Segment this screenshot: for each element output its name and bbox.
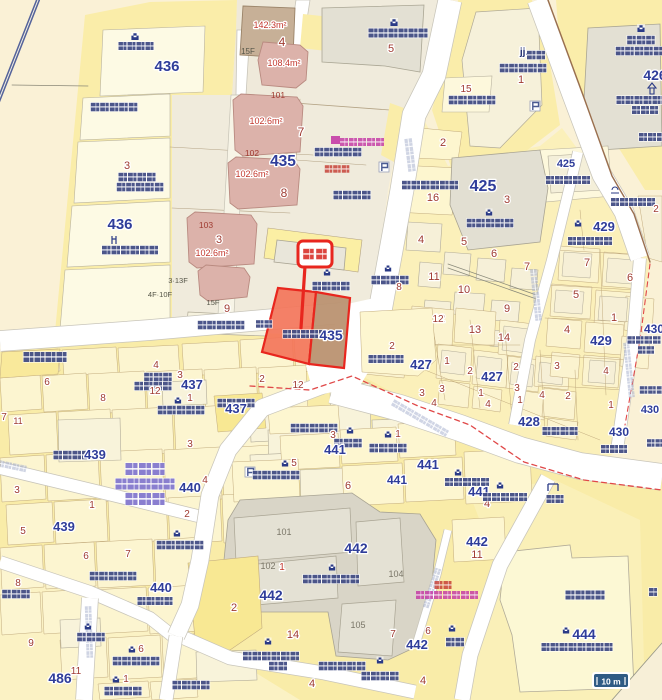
svg-text:429: 429 — [590, 333, 612, 348]
svg-text:3: 3 — [439, 384, 445, 395]
svg-text:435: 435 — [319, 327, 343, 343]
svg-text:4: 4 — [603, 366, 609, 377]
svg-text:11: 11 — [428, 271, 439, 283]
svg-text:442: 442 — [406, 637, 428, 652]
svg-text:4: 4 — [564, 324, 570, 336]
svg-text:441: 441 — [324, 442, 346, 457]
svg-text:102.6m²: 102.6m² — [195, 248, 228, 258]
svg-text:9: 9 — [28, 638, 34, 649]
svg-text:2: 2 — [513, 362, 519, 373]
svg-text:441: 441 — [387, 473, 407, 487]
svg-text:2: 2 — [259, 374, 265, 385]
svg-text:444: 444 — [572, 626, 596, 642]
svg-text:439: 439 — [84, 447, 106, 462]
svg-text:104: 104 — [388, 569, 403, 579]
svg-text:6: 6 — [138, 644, 144, 655]
svg-text:437: 437 — [181, 377, 203, 392]
svg-text:441: 441 — [417, 457, 439, 472]
svg-text:435: 435 — [270, 153, 296, 170]
svg-text:1: 1 — [518, 74, 524, 86]
svg-text:3: 3 — [504, 194, 510, 206]
svg-text:4: 4 — [485, 399, 491, 410]
svg-text:10 m: 10 m — [601, 677, 621, 687]
svg-text:13: 13 — [469, 324, 481, 336]
svg-text:4: 4 — [279, 35, 286, 49]
svg-text:430: 430 — [641, 404, 659, 416]
svg-text:439: 439 — [53, 519, 75, 534]
svg-text:6: 6 — [491, 248, 497, 260]
svg-text:3: 3 — [514, 383, 520, 394]
svg-text:3: 3 — [216, 234, 222, 246]
svg-text:3·13F: 3·13F — [168, 276, 188, 285]
svg-text:3: 3 — [419, 388, 425, 399]
svg-text:436: 436 — [107, 216, 132, 233]
svg-text:15F: 15F — [241, 47, 255, 56]
svg-text:101: 101 — [271, 90, 285, 100]
svg-text:142.3m²: 142.3m² — [253, 20, 286, 30]
svg-text:7: 7 — [584, 257, 590, 269]
svg-text:12: 12 — [432, 314, 444, 325]
svg-text:101: 101 — [276, 527, 291, 537]
svg-text:1: 1 — [187, 393, 193, 404]
svg-text:426: 426 — [643, 67, 662, 83]
svg-text:1: 1 — [517, 395, 523, 406]
svg-text:15F: 15F — [207, 298, 220, 307]
svg-text:5: 5 — [291, 458, 297, 469]
svg-text:16: 16 — [427, 192, 439, 204]
svg-text:102: 102 — [260, 561, 275, 571]
svg-text:1: 1 — [279, 562, 285, 573]
svg-text:5: 5 — [573, 289, 579, 301]
svg-text:10: 10 — [458, 284, 470, 296]
svg-text:1: 1 — [395, 429, 401, 440]
svg-text:102.6m²: 102.6m² — [235, 169, 268, 179]
svg-text:2: 2 — [565, 391, 571, 402]
svg-text:8: 8 — [396, 282, 402, 293]
svg-text:6: 6 — [345, 480, 351, 492]
svg-text:2: 2 — [653, 204, 659, 215]
svg-text:2: 2 — [231, 602, 237, 614]
svg-text:429: 429 — [593, 219, 615, 234]
svg-text:8: 8 — [15, 578, 21, 589]
svg-text:103: 103 — [199, 220, 213, 230]
svg-text:108.4m²: 108.4m² — [267, 58, 300, 68]
svg-text:6: 6 — [83, 551, 89, 562]
svg-text:3: 3 — [14, 485, 20, 496]
svg-text:428: 428 — [518, 414, 540, 429]
svg-text:486: 486 — [48, 670, 72, 686]
svg-text:437: 437 — [225, 401, 247, 416]
svg-text:8: 8 — [100, 393, 106, 404]
svg-text:4: 4 — [418, 234, 424, 246]
svg-text:11: 11 — [13, 416, 22, 426]
svg-text:3: 3 — [187, 439, 193, 450]
svg-text:11: 11 — [71, 666, 82, 677]
svg-text:2: 2 — [184, 509, 190, 520]
svg-text:430: 430 — [609, 425, 629, 439]
svg-text:2: 2 — [467, 366, 473, 377]
svg-text:6: 6 — [627, 272, 633, 284]
svg-text:1: 1 — [611, 312, 617, 324]
svg-text:440: 440 — [179, 480, 201, 495]
svg-text:15: 15 — [460, 84, 472, 95]
svg-text:102: 102 — [245, 148, 259, 158]
svg-text:7: 7 — [1, 412, 7, 423]
svg-text:3: 3 — [124, 160, 130, 172]
svg-text:14: 14 — [287, 629, 299, 641]
svg-text:9: 9 — [224, 303, 230, 315]
svg-text:427: 427 — [481, 369, 503, 384]
svg-text:1: 1 — [444, 356, 450, 367]
svg-text:4: 4 — [539, 390, 545, 401]
svg-text:4: 4 — [420, 675, 426, 687]
svg-text:7: 7 — [390, 629, 396, 640]
svg-text:427: 427 — [410, 357, 432, 372]
svg-text:12: 12 — [292, 380, 304, 391]
svg-text:5: 5 — [388, 43, 394, 55]
svg-text:5: 5 — [20, 526, 26, 537]
svg-text:1: 1 — [89, 500, 95, 511]
svg-text:2: 2 — [440, 137, 446, 149]
svg-text:1: 1 — [608, 400, 614, 411]
svg-text:7: 7 — [524, 261, 530, 273]
svg-text:2: 2 — [389, 341, 395, 352]
svg-text:3: 3 — [554, 361, 560, 372]
svg-text:4: 4 — [202, 475, 208, 486]
svg-text:425: 425 — [470, 178, 497, 195]
svg-text:436: 436 — [154, 58, 179, 75]
svg-text:4: 4 — [153, 360, 159, 371]
svg-text:6: 6 — [425, 626, 431, 637]
svg-text:440: 440 — [150, 580, 172, 595]
svg-text:442: 442 — [466, 534, 488, 549]
svg-text:4F·10F: 4F·10F — [148, 290, 173, 299]
svg-text:7: 7 — [298, 125, 305, 139]
svg-text:442: 442 — [259, 587, 283, 603]
svg-text:11: 11 — [471, 549, 482, 561]
svg-text:8: 8 — [281, 186, 288, 200]
svg-text:1: 1 — [478, 388, 484, 399]
svg-text:425: 425 — [557, 158, 575, 170]
svg-text:442: 442 — [344, 540, 368, 556]
svg-text:12: 12 — [149, 386, 161, 397]
svg-text:105: 105 — [350, 620, 365, 630]
svg-text:4: 4 — [431, 398, 437, 409]
svg-text:6: 6 — [44, 377, 50, 388]
svg-text:4: 4 — [309, 678, 315, 690]
svg-text:430: 430 — [644, 322, 662, 336]
svg-text:102.6m²: 102.6m² — [249, 116, 282, 126]
svg-text:1: 1 — [123, 674, 129, 685]
svg-text:7: 7 — [125, 549, 131, 560]
svg-text:14: 14 — [498, 332, 510, 344]
svg-text:9: 9 — [504, 303, 510, 315]
svg-text:5: 5 — [461, 236, 467, 248]
